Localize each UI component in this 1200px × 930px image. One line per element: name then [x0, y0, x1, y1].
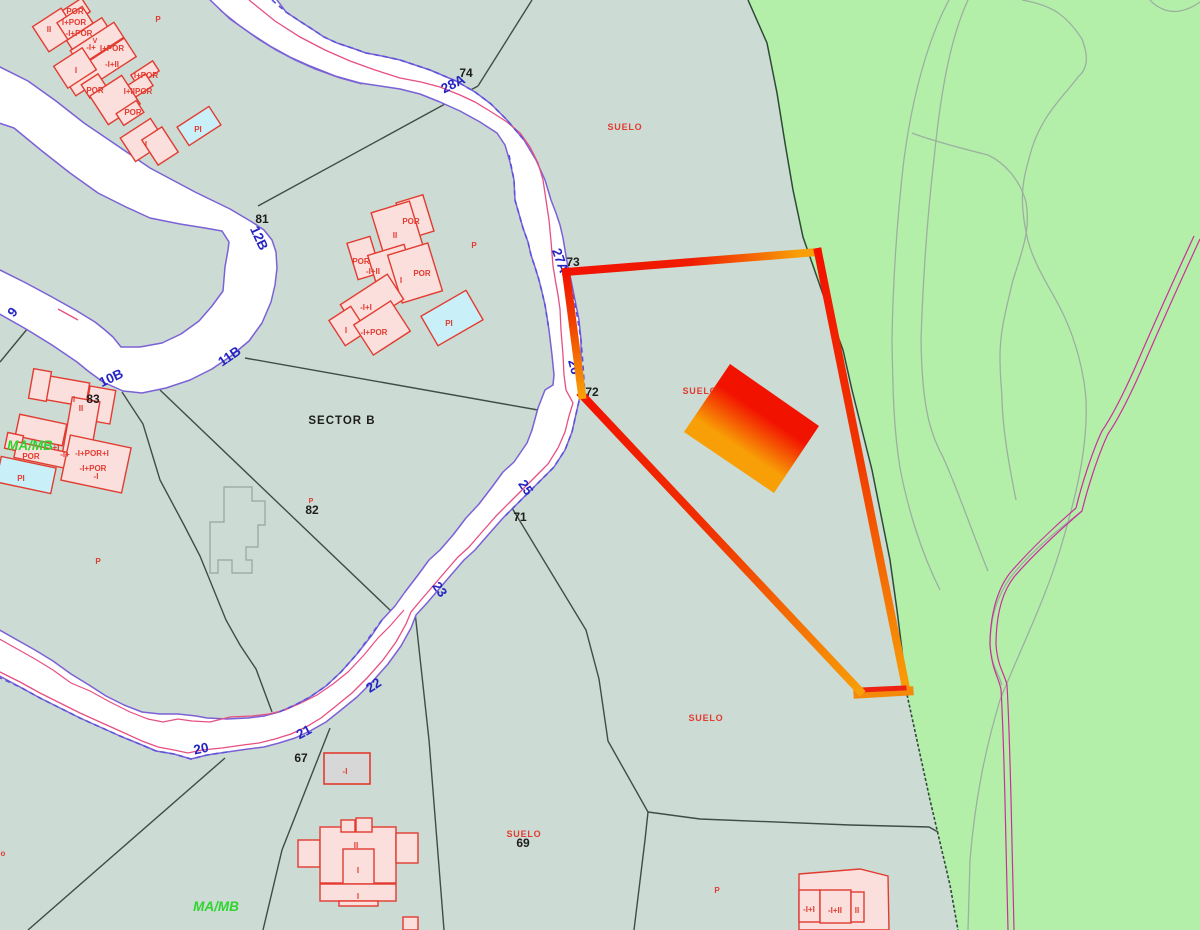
svg-text:P: P	[155, 15, 161, 24]
svg-text:POR: POR	[402, 217, 420, 226]
svg-text:I+POR: I+POR	[134, 71, 158, 80]
svg-text:I: I	[357, 892, 359, 901]
svg-text:-I+POR+I: -I+POR+I	[75, 449, 109, 458]
svg-text:81: 81	[255, 212, 269, 226]
svg-text:SUELO: SUELO	[607, 122, 642, 132]
svg-text:SUELO: SUELO	[688, 713, 723, 723]
svg-text:II: II	[47, 25, 51, 34]
svg-text:POR: POR	[124, 108, 142, 117]
svg-text:-I+POR: -I+POR	[361, 328, 388, 337]
svg-text:PI: PI	[17, 474, 25, 483]
svg-text:83: 83	[86, 392, 100, 406]
svg-text:P: P	[309, 498, 314, 505]
svg-text:-I+POR: -I+POR	[66, 29, 93, 38]
svg-text:POR: POR	[413, 269, 431, 278]
svg-text:I+POR: I+POR	[100, 44, 124, 53]
svg-text:POR: POR	[86, 86, 104, 95]
svg-text:+I: +I	[53, 443, 60, 452]
svg-text:I+IIPOR: I+IIPOR	[124, 87, 153, 96]
svg-text:I: I	[75, 66, 77, 75]
svg-text:71: 71	[513, 510, 527, 524]
svg-text:I: I	[145, 140, 147, 149]
svg-text:I: I	[357, 866, 359, 875]
svg-text:PI: PI	[194, 125, 202, 134]
svg-text:POR: POR	[22, 452, 40, 461]
svg-text:-I+: -I+	[60, 450, 70, 459]
svg-text:-I+I: -I+I	[803, 905, 815, 914]
svg-text:o: o	[1, 849, 6, 858]
svg-text:P: P	[95, 557, 101, 566]
svg-text:P: P	[471, 241, 477, 250]
svg-text:MA/MB: MA/MB	[193, 899, 239, 914]
svg-text:82: 82	[305, 503, 319, 517]
svg-text:I+POR: I+POR	[62, 18, 86, 27]
svg-text:-I: -I	[94, 472, 99, 481]
svg-text:20: 20	[192, 740, 210, 758]
svg-text:II: II	[393, 231, 397, 240]
svg-text:II: II	[354, 841, 358, 850]
svg-text:II: II	[79, 404, 83, 413]
svg-text:SECTOR B: SECTOR B	[308, 415, 375, 427]
svg-text:PI: PI	[445, 319, 453, 328]
svg-text:MA/MB: MA/MB	[7, 438, 53, 453]
svg-text:SUELO: SUELO	[506, 829, 541, 839]
svg-text:I: I	[73, 395, 75, 404]
svg-text:POR: POR	[352, 257, 370, 266]
svg-text:POR: POR	[66, 7, 84, 16]
svg-text:-I: -I	[343, 767, 348, 776]
svg-text:-I+II: -I+II	[366, 267, 380, 276]
svg-text:67: 67	[294, 751, 308, 765]
svg-text:-I+II: -I+II	[105, 60, 119, 69]
svg-text:I: I	[345, 326, 347, 335]
svg-text:I: I	[400, 276, 402, 285]
svg-text:-I+II: -I+II	[828, 906, 842, 915]
svg-text:-I+: -I+	[86, 43, 96, 52]
svg-text:-I+I: -I+I	[360, 303, 372, 312]
svg-text:II: II	[855, 906, 859, 915]
svg-text:P: P	[714, 886, 720, 895]
